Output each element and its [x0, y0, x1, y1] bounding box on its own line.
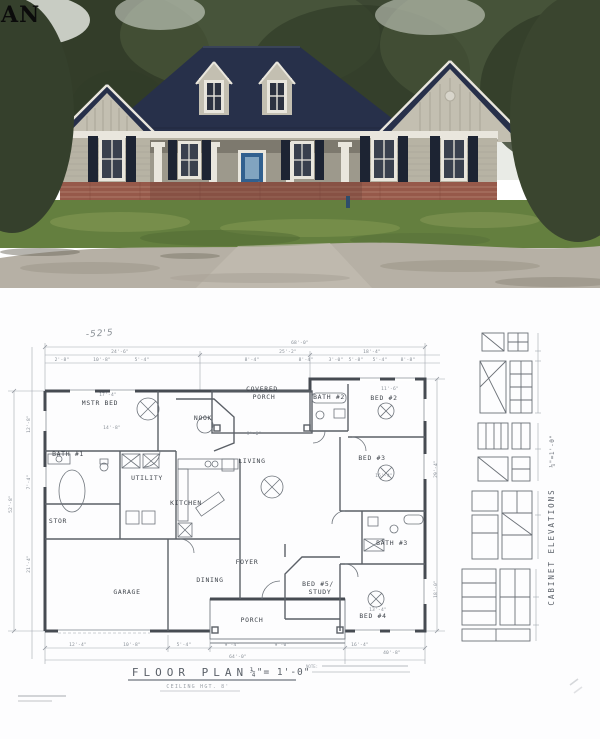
dim-label: 16'-4" [375, 473, 393, 479]
floor-plan-svg: -52'5 [0, 288, 600, 739]
dim-label: 8'-8" [401, 357, 416, 363]
dim-label: 7'-4" [26, 475, 32, 490]
house-photo [0, 0, 600, 288]
title-block: FLOOR PLAN ¼"= 1'-0" CEILING HGT. 8' NOT… [128, 664, 410, 691]
dim-label: 8'-4" [299, 357, 314, 363]
room-label: NOOK [194, 414, 212, 422]
dim-label: 5'-4" [373, 357, 388, 363]
dim-label: 10'-8" [93, 357, 111, 363]
room-label: COVERED [246, 385, 278, 393]
dim-label: 14'-8" [103, 425, 121, 431]
room-label: UTILITY [131, 474, 163, 482]
room-label: MSTR BED [82, 399, 118, 407]
dim-label: 13'-4" [369, 607, 387, 613]
dim-label: 12'-4" [69, 642, 87, 648]
window-shuttered [430, 136, 478, 182]
window-shuttered [88, 136, 136, 182]
dim-label: 18'-0" [433, 580, 439, 598]
dim-label: 5'-4" [177, 642, 192, 648]
room-label: GARAGE [113, 588, 140, 596]
floor-plan-sheet: -52'5 [0, 288, 600, 739]
dim-label: 9'-4" [225, 642, 240, 648]
dim-label: 25'-2" [279, 349, 297, 355]
dim-label: 11'-6" [381, 386, 399, 392]
ceiling-fan [261, 476, 283, 498]
room-label: BATH #1 [52, 450, 84, 458]
room-label: PORCH [253, 393, 276, 401]
dim-label: 5'-8" [349, 357, 364, 363]
ceiling-fan [137, 398, 159, 420]
plan-note-label: NOTE: [306, 664, 318, 669]
interior-walls [45, 384, 425, 631]
listing-composite: AN [0, 0, 600, 739]
dim-label: 40'-8" [383, 650, 401, 656]
dim-label: 17'-4" [99, 392, 117, 398]
dim-label: 64'-0" [229, 654, 247, 660]
cabinet-elevations-scale: ¼"=1'-0" [549, 435, 556, 468]
dim-label: 18'-4" [363, 349, 381, 355]
utility-marker [346, 196, 350, 208]
room-label: BED #4 [359, 612, 386, 620]
dim-label: 12'-8" [26, 415, 32, 433]
gable-vent [445, 91, 455, 101]
dim-label: 9'-6" [247, 431, 262, 437]
window-shuttered [360, 136, 408, 182]
room-label: BATH #3 [376, 539, 408, 547]
dim-label: 68'-0" [291, 340, 309, 346]
dim-label: 52'-8" [8, 495, 14, 513]
dim-label: 29'-4" [433, 460, 439, 478]
front-porch [210, 599, 345, 643]
garage-door [58, 630, 150, 633]
ceiling-fan [378, 403, 394, 419]
cabinet-elevations-title: CABINET ELEVATIONS [547, 488, 556, 605]
dim-label: 3'-0" [329, 357, 344, 363]
pencil-note: -52'5 [86, 328, 115, 340]
house-photo-svg [0, 0, 600, 288]
room-label: STUDY [309, 588, 332, 596]
exterior-walls [45, 379, 425, 631]
plan-title: FLOOR PLAN [132, 666, 248, 679]
dimension-labels: 68'-0"24'-6"25'-2"18'-4"2'-8"10'-8"5'-4"… [8, 340, 439, 660]
dim-label: 24'-6" [111, 349, 129, 355]
dim-label: 2'-8" [55, 357, 70, 363]
dim-label: 10'-8" [123, 642, 141, 648]
plan-title-scale: ¼"= 1'-0" [250, 667, 310, 678]
room-label: DINING [196, 576, 223, 584]
room-label: BATH #2 [313, 393, 345, 401]
dim-label: 5'-4" [135, 357, 150, 363]
room-label: FOYER [236, 558, 259, 566]
dirt-foreground [0, 243, 600, 288]
window-shuttered [281, 140, 324, 180]
watermark-text: AN [1, 2, 40, 28]
dim-label: 21'-4" [26, 555, 32, 573]
room-label: PORCH [241, 616, 264, 624]
dim-label: 8'-4" [245, 357, 260, 363]
room-label: BED #5/ [302, 580, 334, 588]
fine-print [18, 696, 66, 701]
lawn [0, 196, 600, 248]
ceiling-fan [368, 591, 384, 607]
plan-subtitle: CEILING HGT. 8' [166, 684, 229, 690]
room-label: KITCHEN [170, 499, 202, 507]
window-shuttered [168, 140, 211, 180]
room-label: BED #2 [370, 394, 397, 402]
dim-label: 9'-0" [275, 642, 290, 648]
dim-label: 16'-4" [351, 642, 369, 648]
room-label: LIVING [238, 457, 265, 465]
room-label: STOR [49, 517, 67, 525]
cabinet-elevations [462, 333, 582, 693]
room-label: BED #3 [358, 454, 385, 462]
